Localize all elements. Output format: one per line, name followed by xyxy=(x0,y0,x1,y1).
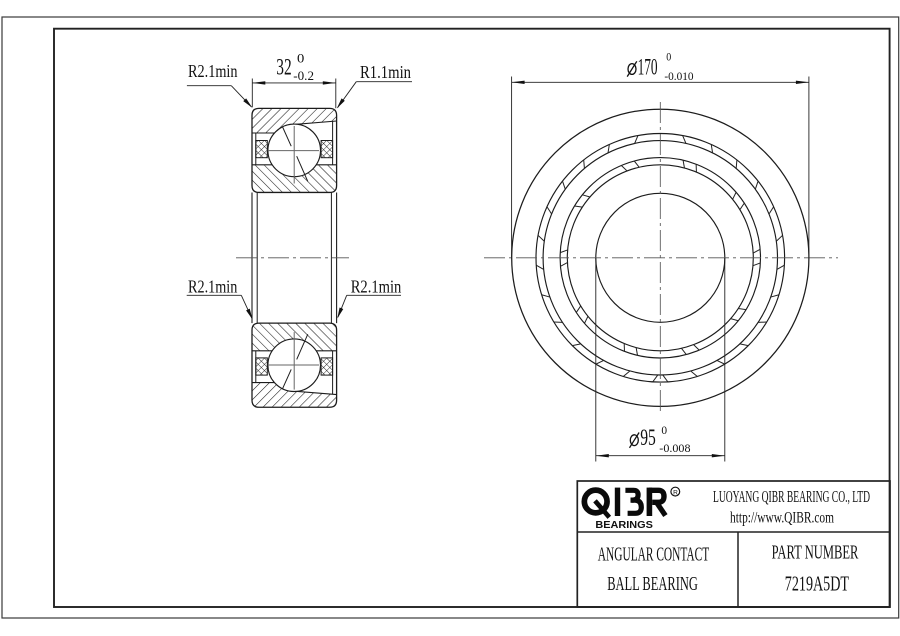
svg-text:R2.1min: R2.1min xyxy=(188,277,237,297)
svg-text:BALL BEARING: BALL BEARING xyxy=(607,573,698,595)
svg-text:0: 0 xyxy=(297,51,304,66)
svg-text:170: 170 xyxy=(638,55,658,80)
svg-text:R: R xyxy=(673,490,678,497)
svg-text:7219A5DT: 7219A5DT xyxy=(785,572,849,596)
svg-text:-0.2: -0.2 xyxy=(293,68,314,83)
svg-text:BEARINGS: BEARINGS xyxy=(595,519,653,531)
svg-text:R2.1min: R2.1min xyxy=(351,277,402,297)
svg-text:ANGULAR CONTACT: ANGULAR CONTACT xyxy=(598,544,709,566)
svg-text:-0.008: -0.008 xyxy=(659,443,690,455)
svg-text:95: 95 xyxy=(640,425,656,450)
svg-text:R2.1min: R2.1min xyxy=(188,61,238,81)
svg-text:0: 0 xyxy=(666,52,671,64)
svg-text:http://www.QIBR.com: http://www.QIBR.com xyxy=(730,509,834,526)
svg-text:PART NUMBER: PART NUMBER xyxy=(772,542,859,564)
svg-text:32: 32 xyxy=(276,55,291,80)
svg-text:-0.010: -0.010 xyxy=(664,71,693,83)
svg-text:R1.1min: R1.1min xyxy=(360,62,411,82)
svg-text:LUOYANG QIBR BEARING CO., LTD: LUOYANG QIBR BEARING CO., LTD xyxy=(713,487,870,506)
svg-text:0: 0 xyxy=(661,425,667,437)
